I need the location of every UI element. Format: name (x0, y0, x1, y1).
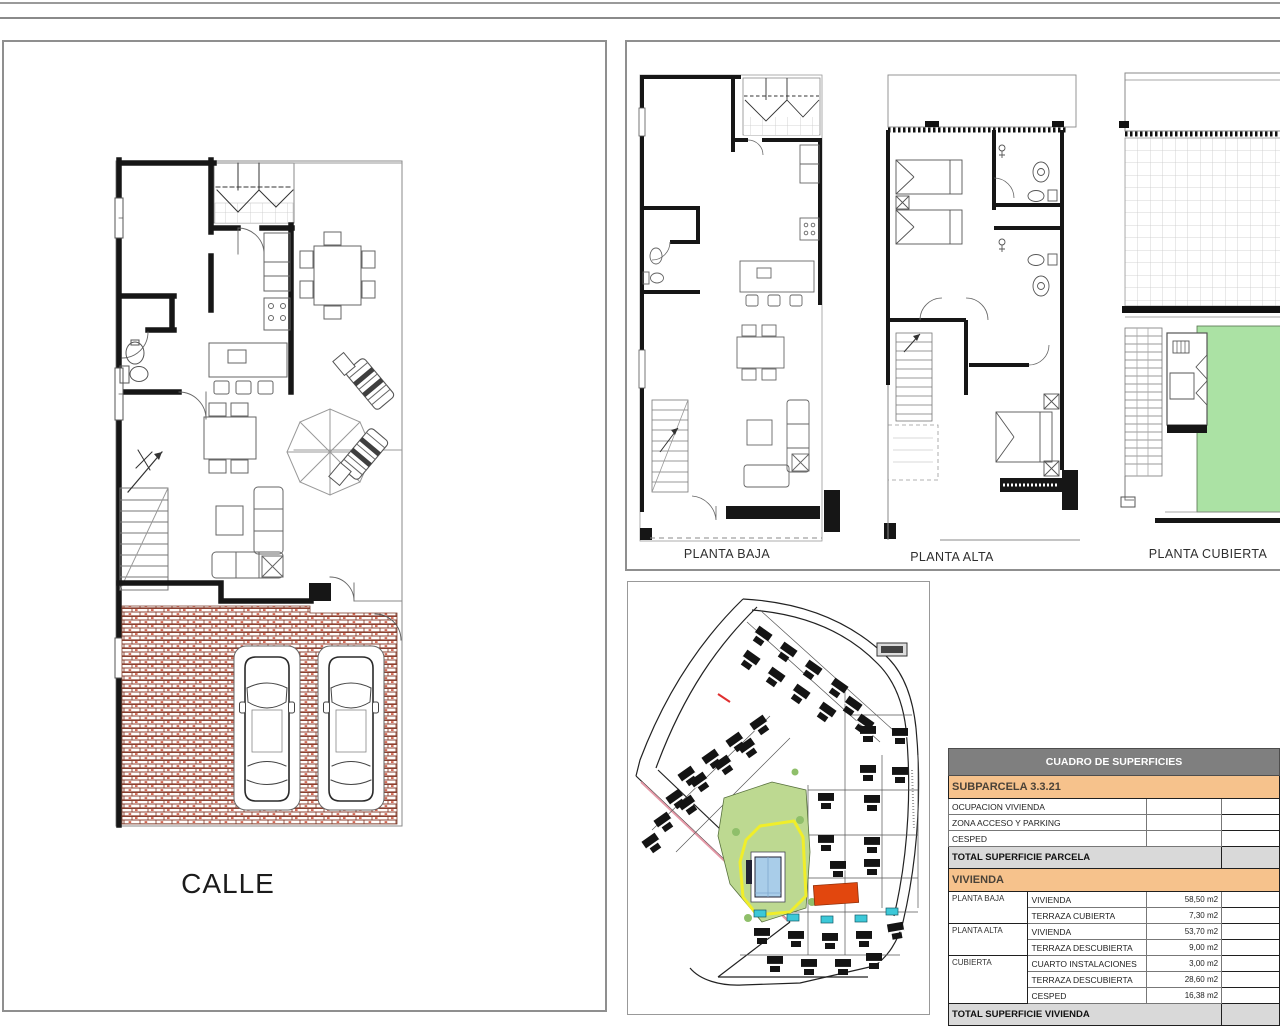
subparcela-title: SUBPARCELA 3.3.21 (949, 776, 1280, 799)
parcela-row-value (1146, 815, 1221, 831)
sheet-top-border-inner (0, 17, 1280, 19)
street-label: CALLE (138, 868, 318, 900)
vivienda-value: 58,50 m2 (1146, 892, 1221, 908)
vivienda-concept: TERRAZA CUBIERTA (1028, 908, 1146, 924)
floor-plans-panel (625, 40, 1280, 571)
vivienda-group: CUBIERTA (949, 956, 1028, 1004)
parcela-row-label: CESPED (949, 831, 1147, 847)
parcela-row-label: ZONA ACCESO Y PARKING (949, 815, 1147, 831)
parcela-row-value (1146, 831, 1221, 847)
total-parcela-label: TOTAL SUPERFICIE PARCELA (949, 847, 1222, 869)
vivienda-value: 53,70 m2 (1146, 924, 1221, 940)
vivienda-concept: CESPED (1028, 988, 1146, 1004)
site-plan-panel (627, 581, 930, 1015)
planta-cubierta-label: PLANTA CUBIERTA (1118, 547, 1280, 561)
vivienda-group: PLANTA ALTA (949, 924, 1028, 956)
vivienda-value: 9,00 m2 (1146, 940, 1221, 956)
vivienda-concept: VIVIENDA (1028, 924, 1146, 940)
table-title: CUADRO DE SUPERFICIES (949, 749, 1280, 776)
total-vivienda-label: TOTAL SUPERFICIE VIVIENDA (949, 1004, 1222, 1026)
vivienda-value: 7,30 m2 (1146, 908, 1221, 924)
vivienda-value: 16,38 m2 (1146, 988, 1221, 1004)
parcela-row-value (1146, 799, 1221, 815)
sheet-top-border-outer (0, 2, 1280, 4)
vivienda-title: VIVIENDA (949, 869, 1280, 892)
planta-alta-label: PLANTA ALTA (862, 550, 1042, 564)
ground-plot-plan-panel (2, 40, 607, 1012)
parcela-row-label: OCUPACION VIVIENDA (949, 799, 1147, 815)
vivienda-concept: TERRAZA DESCUBIERTA (1028, 972, 1146, 988)
planta-baja-label: PLANTA BAJA (637, 547, 817, 561)
vivienda-value: 28,60 m2 (1146, 972, 1221, 988)
vivienda-group: PLANTA BAJA (949, 892, 1028, 924)
vivienda-concept: CUARTO INSTALACIONES (1028, 956, 1146, 972)
surfaces-table: CUADRO DE SUPERFICIES SUBPARCELA 3.3.21 … (948, 748, 1280, 1026)
vivienda-concept: VIVIENDA (1028, 892, 1146, 908)
drawing-sheet: { "sheet": { "street_label": "CALLE", "f… (0, 0, 1280, 1024)
vivienda-value: 3,00 m2 (1146, 956, 1221, 972)
vivienda-concept: TERRAZA DESCUBIERTA (1028, 940, 1146, 956)
